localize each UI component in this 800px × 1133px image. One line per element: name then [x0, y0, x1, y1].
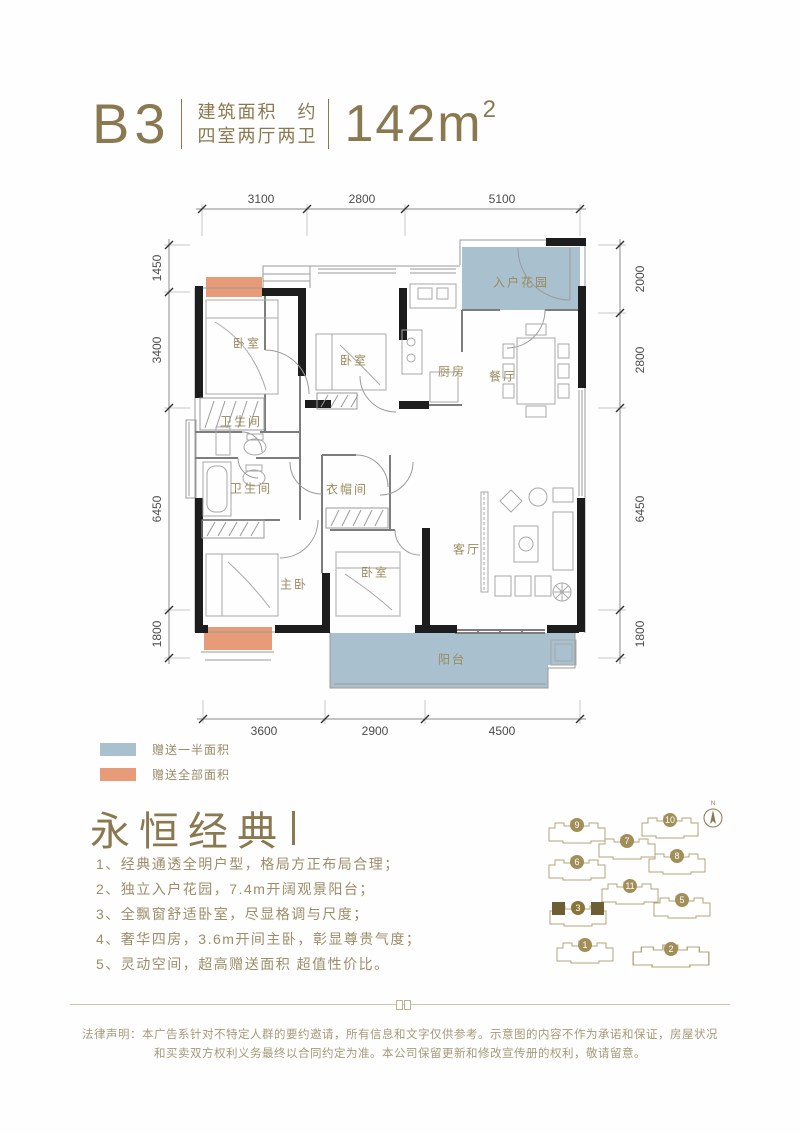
svg-text:N: N [711, 801, 715, 807]
divider-ornament-right [404, 1000, 411, 1010]
legend-swatch-blue [100, 743, 136, 756]
dim-left-2: 3400 [150, 337, 164, 364]
unit-area: 142m2 [345, 96, 498, 152]
siteplan-map: 9 10 7 6 8 11 3 5 1 2 N [535, 788, 765, 983]
unit-spec: 建筑面积 约 四室两厅两卫 [198, 100, 318, 148]
feature-item-2: 2、独立入户花园，7.4m开阔观景阳台； [96, 877, 421, 902]
area-superscript: 2 [483, 98, 498, 122]
svg-text:5: 5 [679, 895, 684, 905]
legal-disclaimer: 法律声明：本广告系针对不特定人群的要约邀请，所有信息和文字仅供参考。示意图的内容… [80, 1026, 720, 1064]
dim-left-1: 1450 [150, 255, 164, 282]
room-label-balcony: 阳台 [438, 651, 466, 668]
spec-line-1: 建筑面积 约 [198, 100, 318, 124]
svg-text:3: 3 [575, 903, 580, 913]
dim-left-4: 1800 [150, 621, 164, 648]
header-divider-1 [181, 99, 182, 149]
dim-top-1: 3100 [248, 192, 275, 206]
room-label-bedroom-2: 卧室 [340, 352, 368, 369]
dim-right-1: 2000 [633, 266, 647, 293]
dim-bottom-1: 3600 [251, 724, 278, 738]
legend-item-gift-half: 赠送一半面积 [100, 741, 230, 757]
room-label-entry-garden: 入户花园 [493, 274, 549, 291]
dim-right-4: 1800 [633, 621, 647, 648]
room-label-bedroom-3: 卧室 [361, 564, 389, 581]
room-label-kitchen: 厨房 [438, 363, 466, 380]
header-divider-2 [328, 99, 329, 149]
svg-text:6: 6 [574, 857, 579, 867]
svg-text:8: 8 [674, 851, 679, 861]
feature-item-3: 3、全飘窗舒适卧室，尽显格调与尺度； [96, 902, 421, 927]
gift-area-fills [204, 247, 580, 688]
room-label-bathroom-1: 卫生间 [220, 413, 262, 430]
dim-left-3: 6450 [150, 496, 164, 523]
divider-ornament-left [396, 1000, 403, 1010]
svg-text:2: 2 [668, 944, 673, 954]
room-label-bedroom-1: 卧室 [233, 335, 261, 352]
flyer-page: B3 建筑面积 约 四室两厅两卫 142m2 [0, 0, 800, 1133]
dim-bottom-3: 4500 [489, 724, 516, 738]
feature-item-4: 4、奢华四房，3.6m开间主卧，彰显尊贵气度； [96, 927, 421, 952]
dim-top-3: 5100 [489, 192, 516, 206]
svg-text:10: 10 [665, 815, 675, 825]
floorplan-drawing [160, 190, 660, 740]
room-label-cloakroom: 衣帽间 [326, 481, 368, 498]
feature-list: 1、经典通透全明户型，格局方正布局合理； 2、独立入户花园，7.4m开阔观景阳台… [96, 852, 421, 977]
feature-item-1: 1、经典通透全明户型，格局方正布局合理； [96, 852, 421, 877]
legend-swatch-orange [100, 768, 136, 781]
room-label-bathroom-2: 卫生间 [230, 480, 272, 497]
dim-right-2: 2800 [633, 347, 647, 374]
room-label-dining-room: 餐厅 [489, 368, 517, 385]
header: B3 建筑面积 约 四室两厅两卫 142m2 [92, 96, 498, 152]
svg-text:9: 9 [574, 820, 579, 830]
feature-item-5: 5、灵动空间，超高赠送面积 超值性价比。 [96, 952, 421, 977]
dim-right-3: 6450 [633, 496, 647, 523]
title-bar-ornament [292, 811, 295, 845]
room-label-living-room: 客厅 [453, 541, 481, 558]
dim-bottom-2: 2900 [362, 724, 389, 738]
dim-top-2: 2800 [349, 192, 376, 206]
legend: 赠送一半面积 赠送全部面积 [100, 741, 230, 791]
unit-code: B3 [92, 96, 171, 152]
legend-item-gift-full: 赠送全部面积 [100, 766, 230, 782]
section-title: 永恒经典 [90, 799, 295, 857]
room-label-master-bedroom: 主卧 [280, 576, 308, 593]
svg-text:11: 11 [625, 881, 634, 891]
svg-text:7: 7 [624, 836, 629, 846]
compass-icon: N [704, 801, 722, 827]
spec-line-2: 四室两厅两卫 [198, 124, 318, 148]
svg-text:1: 1 [582, 940, 587, 950]
